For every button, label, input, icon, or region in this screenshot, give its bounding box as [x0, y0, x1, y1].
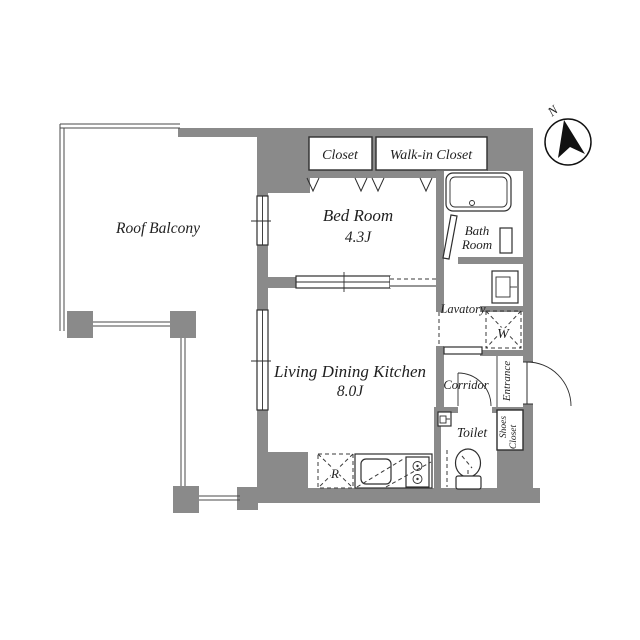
railing-post-2 [170, 311, 196, 338]
wall-bedroom-top [310, 170, 436, 178]
toilet-label: Toilet [457, 425, 489, 440]
railing-post-3 [173, 486, 199, 513]
bed-room-size-label: 4.3J [345, 229, 372, 246]
refrigerator-label: R [330, 466, 339, 481]
closet-label: Closet [322, 148, 359, 163]
walk-in-closet-label: Walk-in Closet [390, 148, 473, 163]
wall-kitchen-left-block [257, 452, 308, 488]
wall-washer-entrance [480, 350, 523, 356]
wall-divider-post [436, 277, 444, 288]
wall-bedroom-east [436, 171, 444, 277]
bathtub-icon [446, 173, 511, 211]
closet-door-mark [372, 178, 384, 191]
railing-post-1 [67, 311, 93, 338]
entrance-door-arc [527, 362, 571, 406]
bath-counter [500, 228, 512, 253]
wall-bath-lavatory [458, 257, 523, 264]
closet-door-mark [420, 178, 432, 191]
north-label: N [544, 101, 562, 120]
wall-divider-left [257, 277, 296, 288]
kitchen-sink-icon [361, 459, 391, 484]
floor-plan-canvas: N Roof Balcony Closet Walk-in Closet Bed… [0, 0, 640, 640]
toilet-base [456, 476, 481, 489]
entrance-label: Entrance [501, 361, 513, 402]
balcony-railing [60, 124, 240, 513]
wall-right-upper [523, 171, 533, 362]
shoes-closet-label-1: Shoes [499, 416, 509, 438]
wall-balcony-corner-block [257, 137, 310, 193]
bath-door-leaf [443, 215, 457, 259]
north-compass: N [544, 101, 591, 165]
wall-bottom-right-block [497, 450, 533, 503]
roof-balcony-label: Roof Balcony [115, 220, 200, 237]
lavatory-corridor-slider [444, 347, 482, 354]
shoes-closet-label-2: Closet [509, 425, 519, 450]
wall-ldk-east-lower [436, 346, 444, 407]
lavatory-door-opening [436, 312, 444, 346]
closet-door-mark [355, 178, 367, 191]
bath-room-label-2: Room [461, 237, 492, 252]
washing-machine-label: W [497, 327, 510, 342]
wall-bottom [242, 488, 540, 503]
ldk-label: Living Dining Kitchen [273, 362, 426, 381]
wall-bottom-left-stub [237, 487, 258, 510]
bath-room-label-1: Bath [465, 223, 490, 238]
floor-plan: N Roof Balcony Closet Walk-in Closet Bed… [0, 0, 640, 640]
wall-top [178, 128, 488, 137]
wall-top-right-corner [487, 128, 533, 171]
bed-room-label: Bed Room [323, 206, 393, 225]
lavatory-label: Lavatory [439, 302, 486, 316]
ldk-size-label: 8.0J [337, 383, 364, 400]
wall-west-c [257, 410, 268, 452]
corridor-label: Corridor [443, 378, 488, 392]
